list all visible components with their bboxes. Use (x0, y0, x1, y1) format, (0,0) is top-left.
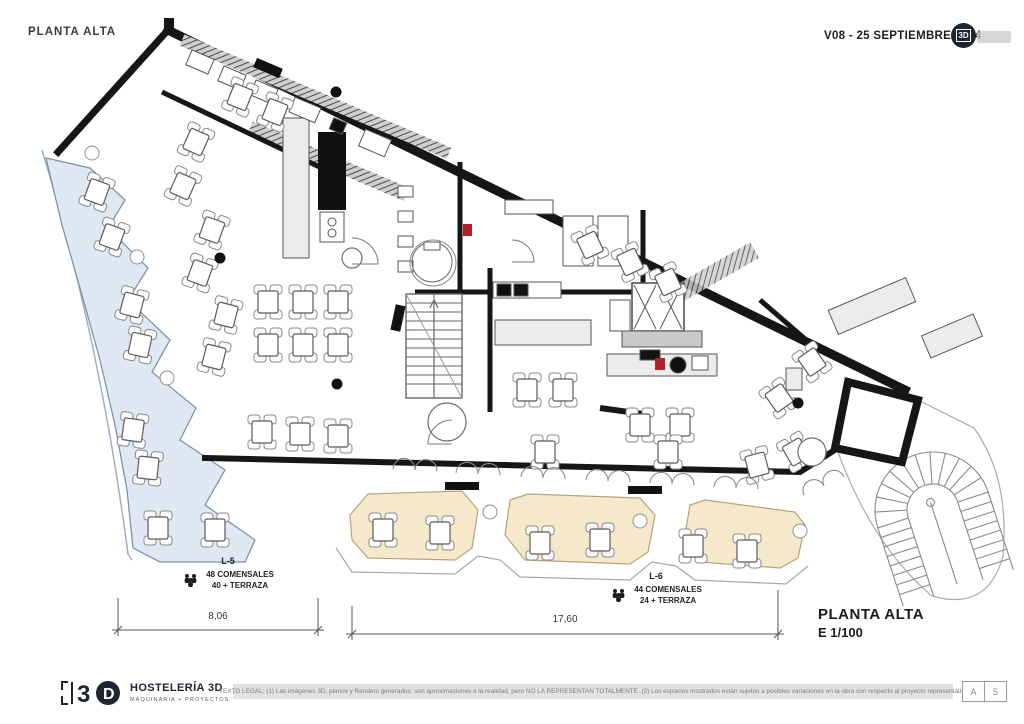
table-4-seats (254, 328, 282, 362)
title-block: PLANTA ALTA E 1/100 (818, 606, 924, 642)
table-4-seats (289, 328, 317, 362)
zone-code: L-5 (143, 556, 313, 566)
zone-seats: 44 COMENSALES (634, 584, 702, 595)
structural-column (215, 253, 226, 264)
planter (130, 250, 144, 264)
brand-tagline: MAQUINARIA + PROYECTOS (130, 694, 229, 706)
table-4-seats (163, 165, 202, 207)
table-4-seats (324, 285, 352, 319)
round-table (428, 403, 466, 441)
table-4-seats (739, 445, 775, 485)
version-badge (977, 31, 1011, 43)
people-icon (182, 573, 200, 587)
zone-terrace: 40 + TERRAZA (206, 580, 274, 591)
round-table (798, 438, 826, 466)
table-4-seats (289, 285, 317, 319)
zone-code: L-6 (571, 571, 741, 581)
table-4-seats (196, 337, 231, 377)
brand-name: HOSTELERÍA 3D (130, 682, 229, 694)
sheet-title: PLANTA ALTA (28, 26, 116, 38)
table-4-seats (286, 417, 314, 451)
hosteleria3d-logo-icon: 3 D (58, 679, 124, 707)
booth-seat (650, 472, 695, 485)
plan-sheet: PLANTA ALTA V08 - 25 SEPTIEMBRE 2024 3D … (0, 0, 1024, 724)
planter (793, 524, 807, 538)
zone-seats: 48 COMENSALES (206, 569, 274, 580)
table-4-seats (513, 373, 541, 407)
table-4-seats (549, 373, 577, 407)
brand-text: HOSTELERÍA 3D MAQUINARIA + PROYECTOS (130, 682, 229, 706)
svg-text:3: 3 (77, 681, 90, 707)
table-4-seats (324, 419, 352, 453)
legal-text: TEXTO LEGAL: (1) Las imágenes 3D, planos… (219, 688, 967, 695)
table-4-seats (193, 209, 231, 251)
planter (160, 371, 174, 385)
table-4-seats (181, 252, 219, 294)
planter (483, 505, 497, 519)
structural-column (331, 87, 342, 98)
table-4-seats (254, 285, 282, 319)
fire-extinguisher-icon (463, 224, 472, 236)
legal-strip: TEXTO LEGAL: (1) Las imágenes 3D, planos… (233, 684, 953, 699)
table-4-seats (176, 121, 215, 163)
people-icon (610, 588, 628, 602)
page-letter-box: A (962, 681, 985, 702)
planter (85, 146, 99, 160)
zone-terrace: 24 + TERRAZA (634, 595, 702, 606)
planter (633, 514, 647, 528)
zone-label-l5: L-5 48 COMENSALES 40 + TERRAZA (143, 556, 313, 591)
round-table (342, 248, 362, 268)
fire-extinguisher-icon (655, 358, 665, 370)
structural-column (793, 398, 804, 409)
dimension-label-left: 8,06 (118, 611, 318, 622)
table-4-seats (248, 415, 276, 449)
u-staircase (860, 437, 1014, 606)
main-staircase (406, 294, 462, 398)
svg-text:D: D (103, 686, 115, 703)
title-block-name: PLANTA ALTA (818, 606, 924, 624)
structural-column (332, 379, 343, 390)
table-4-seats (324, 328, 352, 362)
brand-logo-icon: 3D (951, 23, 976, 48)
table-4-seats (208, 295, 243, 335)
bar-counter (283, 118, 346, 258)
zone-label-l6: L-6 44 COMENSALES 24 + TERRAZA (571, 571, 741, 606)
title-block-scale: E 1/100 (818, 624, 924, 642)
dimension-label-bottom: 17,60 (346, 614, 784, 625)
booth-seat (586, 469, 631, 482)
page-number-box: 5 (984, 681, 1007, 702)
